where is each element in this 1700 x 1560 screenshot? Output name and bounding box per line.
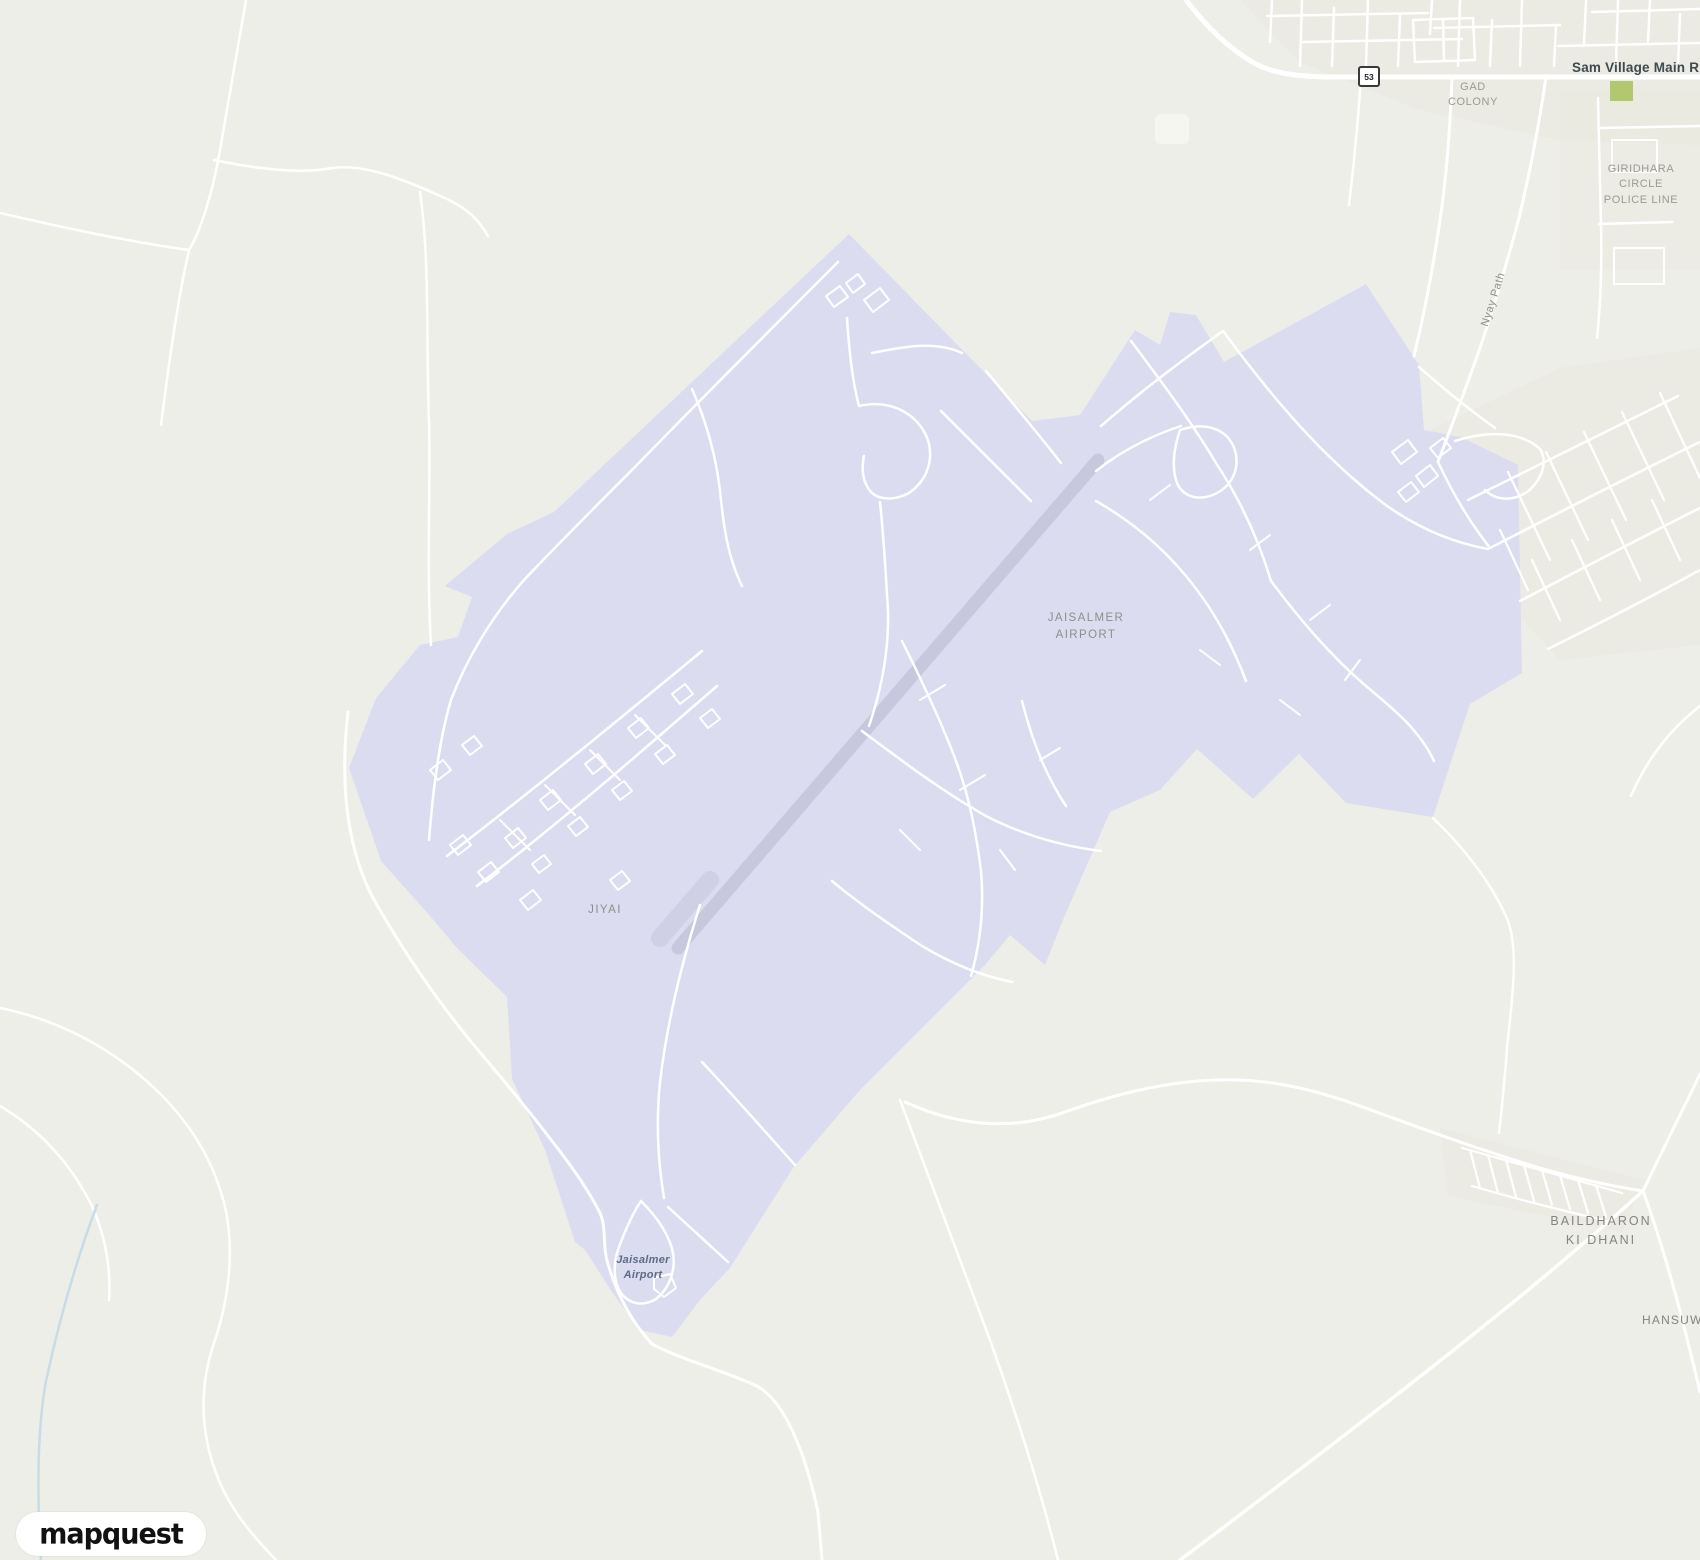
area-label-jaisalmer-airport: JAISALMER AIRPORT [1016,610,1156,645]
place-label-gad-colony: GAD COLONY [1433,80,1513,111]
map-graphics [0,0,1700,1560]
place-label-jiyai: JIYAI [555,902,655,919]
mapquest-logo[interactable]: mapquest [16,1512,206,1556]
poi-label-line: Airport [583,1268,703,1283]
place-label-giridhara-circle-police-line: GIRIDHARA CIRCLE POLICE LINE [1576,162,1700,208]
road-label-sam-village-main-road: Sam Village Main R [1572,60,1699,75]
place-label-hansuwa: HANSUW [1642,1311,1700,1329]
route-shield-number: 53 [1364,72,1373,82]
place-label-line: GAD [1433,80,1513,95]
place-label-line: GIRIDHARA [1576,162,1700,177]
pond-patch [1155,114,1189,144]
place-label-baildharon-ki-dhani: BAILDHARON KI DHANI [1501,1212,1700,1250]
area-label-line: JAISALMER [1016,610,1156,627]
place-label-line: POLICE LINE [1576,193,1700,208]
poi-label-jaisalmer-airport-terminal: Jaisalmer Airport [583,1253,703,1283]
poi-label-line: Jaisalmer [583,1253,703,1268]
place-label-line: KI DHANI [1501,1231,1700,1250]
mapquest-logo-text: mapquest [39,1518,183,1551]
place-label-line: COLONY [1433,95,1513,110]
area-label-line: AIRPORT [1016,627,1156,644]
park-green-area [1610,81,1633,101]
route-shield-53: 53 [1358,66,1380,87]
place-label-line: CIRCLE [1576,177,1700,192]
map-canvas[interactable]: Sam Village Main R 53 GAD COLONY GIRIDHA… [0,0,1700,1560]
place-label-line: BAILDHARON [1501,1212,1700,1231]
